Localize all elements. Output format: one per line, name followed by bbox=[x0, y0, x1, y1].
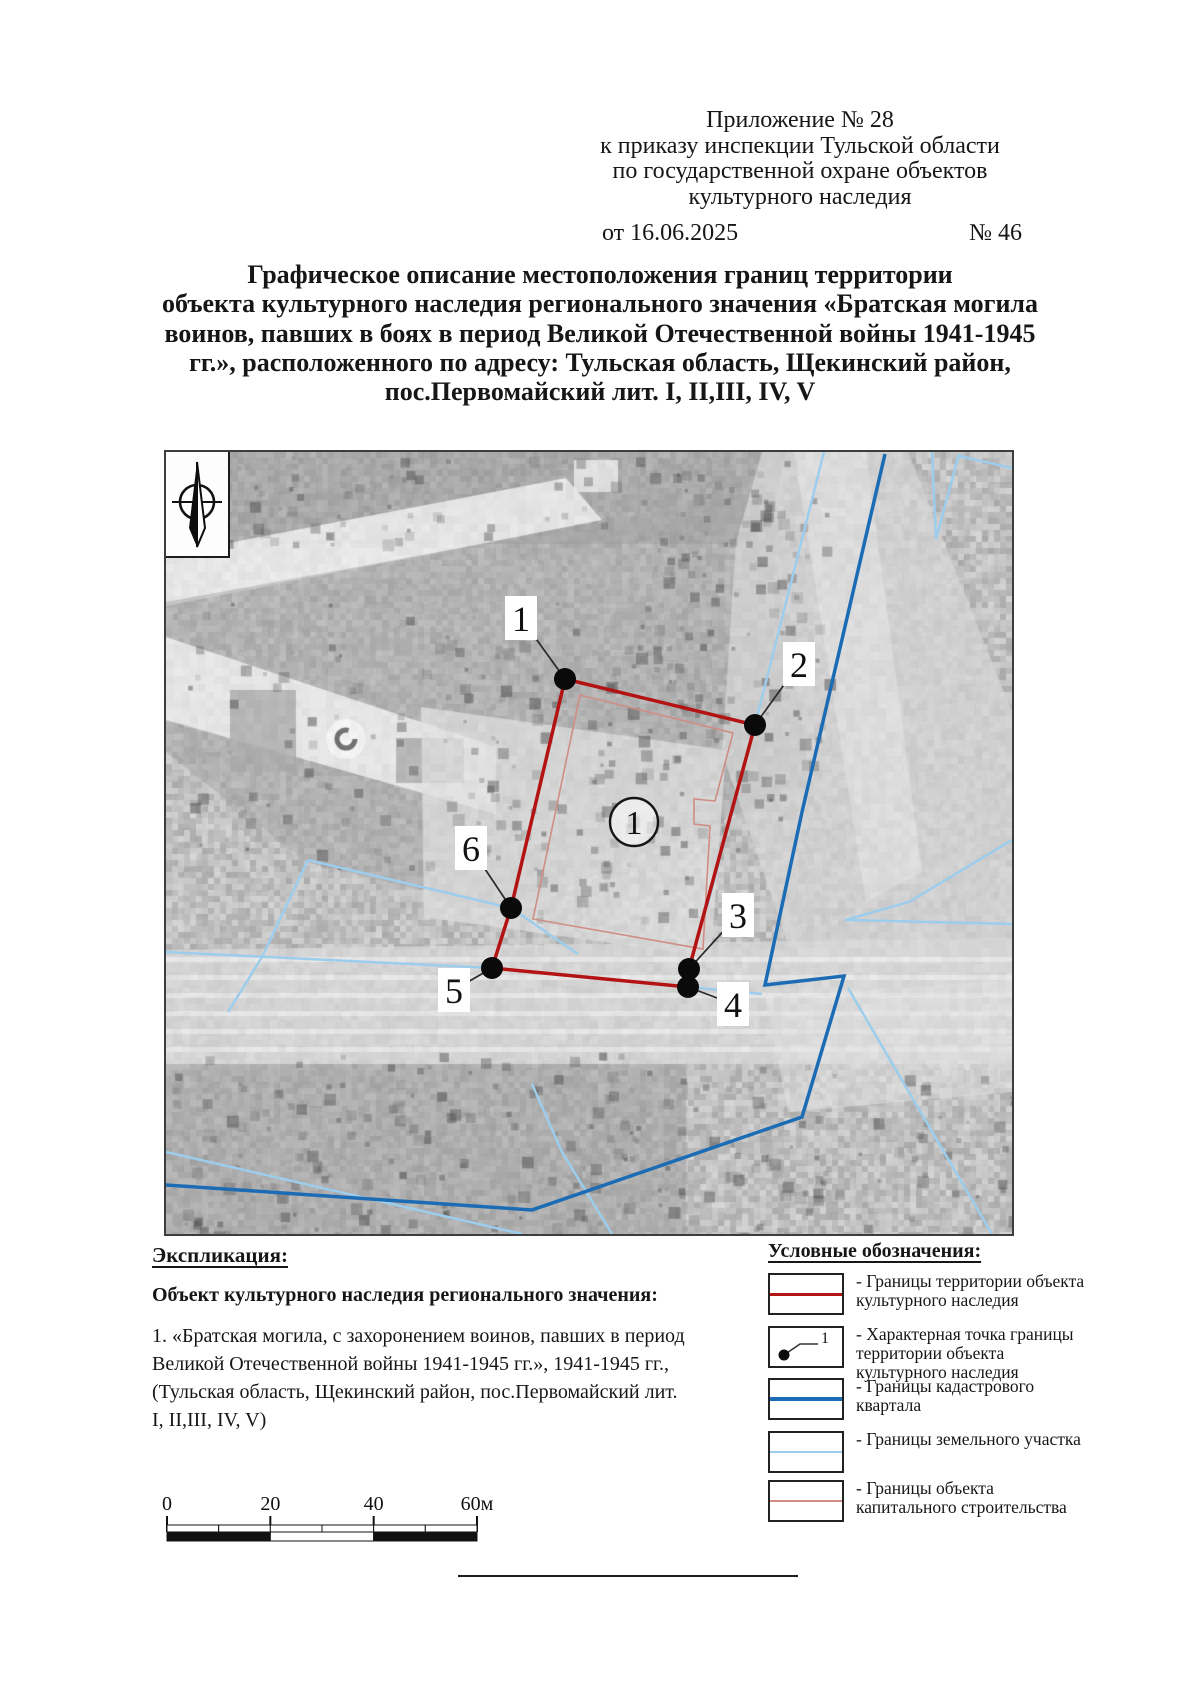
boundary-point-dot bbox=[481, 957, 503, 979]
header-reference: Приложение № 28 к приказу инспекции Туль… bbox=[520, 108, 1080, 210]
header-date-row: от 16.06.2025 № 46 bbox=[602, 220, 1022, 247]
explication-item: 1. «Братская могила, с захоронением воин… bbox=[152, 1322, 752, 1434]
scale-label: 60м bbox=[461, 1493, 494, 1515]
scale-cell bbox=[322, 1525, 374, 1532]
point-label: 5 bbox=[445, 971, 463, 1011]
scale-block bbox=[167, 1532, 270, 1541]
map-overlay: 123456 1 bbox=[166, 452, 1012, 1234]
scale-label: 20 bbox=[260, 1493, 280, 1515]
legend-item-label: - Границы территории объекта культурного… bbox=[856, 1272, 1091, 1310]
legend-heading: Условные обозначения: bbox=[768, 1240, 981, 1263]
point-label: 3 bbox=[729, 896, 747, 936]
legend-item-label: - Границы объекта капитального строитель… bbox=[856, 1479, 1091, 1517]
scale-cell bbox=[270, 1525, 322, 1532]
point-label: 6 bbox=[462, 829, 480, 869]
explication-subheading: Объект культурного наследия региональног… bbox=[152, 1284, 658, 1307]
site-map: 123456 1 bbox=[164, 450, 1014, 1236]
boundary-point-dot bbox=[744, 714, 766, 736]
scale-bar: 0204060м bbox=[152, 1484, 522, 1551]
scale-label: 0 bbox=[162, 1493, 172, 1515]
parcel-boundary-lines bbox=[166, 452, 1012, 1234]
characteristic-point-symbol: 1 bbox=[768, 1326, 844, 1368]
cadastral-boundary-line bbox=[166, 454, 885, 1210]
scale-cell bbox=[374, 1525, 426, 1532]
boundary-point-dot bbox=[554, 668, 576, 690]
north-arrow-icon bbox=[166, 452, 228, 556]
legend-item-label: - Характерная точка границы территории о… bbox=[856, 1325, 1091, 1382]
characteristic-point-icon: 1 bbox=[770, 1330, 838, 1364]
point-label: 1 bbox=[512, 599, 530, 639]
explication-heading: Экспликация: bbox=[152, 1243, 288, 1268]
order-number: № 46 bbox=[969, 220, 1022, 247]
cadastral-boundary-symbol bbox=[768, 1378, 844, 1420]
legend-item-label: - Границы кадастрового квартала bbox=[856, 1377, 1091, 1415]
order-date: от 16.06.2025 bbox=[602, 220, 738, 247]
scale-cell bbox=[425, 1525, 477, 1532]
scale-cell bbox=[167, 1525, 219, 1532]
point-label: 4 bbox=[724, 985, 742, 1025]
point-label: 2 bbox=[790, 645, 808, 685]
legend-item-label: - Границы земельного участка bbox=[856, 1430, 1091, 1449]
heritage-object-marker: 1 bbox=[610, 798, 658, 846]
scale-bar-graphic: 0204060м bbox=[152, 1484, 522, 1546]
document-page: Приложение № 28 к приказу инспекции Туль… bbox=[0, 0, 1200, 1697]
scale-cell bbox=[219, 1525, 271, 1532]
legend-point-number: 1 bbox=[821, 1330, 829, 1347]
scale-block bbox=[374, 1532, 477, 1541]
territory-boundary-symbol bbox=[768, 1273, 844, 1315]
parcel-boundary-symbol bbox=[768, 1431, 844, 1473]
object-number: 1 bbox=[626, 805, 643, 842]
construction-boundary-symbol bbox=[768, 1480, 844, 1522]
boundary-point-dot bbox=[500, 897, 522, 919]
scale-label: 40 bbox=[364, 1493, 384, 1515]
page-title: Графическое описание местоположения гран… bbox=[133, 260, 1067, 406]
scale-block bbox=[270, 1532, 373, 1541]
boundary-point-dot bbox=[677, 976, 699, 998]
north-arrow-box bbox=[166, 452, 230, 558]
signature-line bbox=[458, 1575, 798, 1577]
